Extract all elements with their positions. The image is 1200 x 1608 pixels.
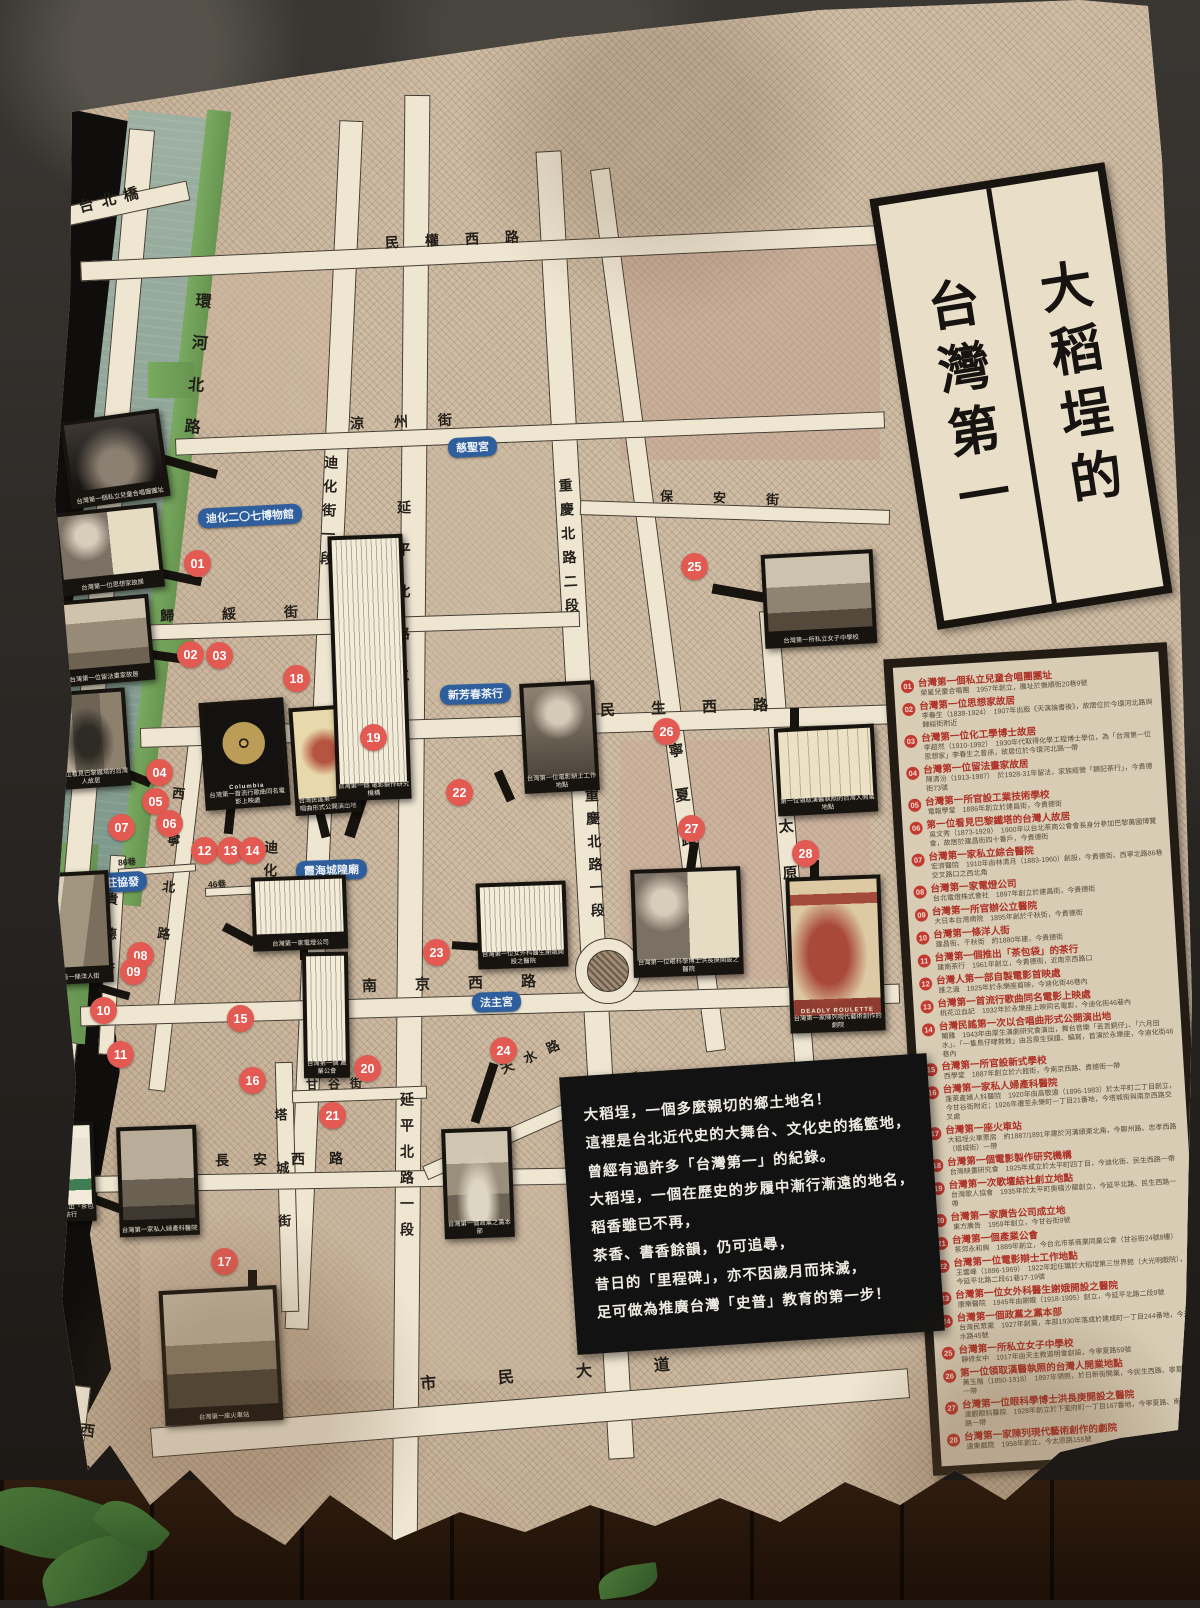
map-poster: 台北橋環河北路環河西寧北路迪化街一段迪化街一段延平北路二段延平北路一段重慶北路二…	[0, 0, 1200, 1600]
paper-stains	[0, 0, 1200, 1600]
scene-photo: { "poster": { "title": {"right_col": "大稻…	[0, 0, 1200, 1600]
